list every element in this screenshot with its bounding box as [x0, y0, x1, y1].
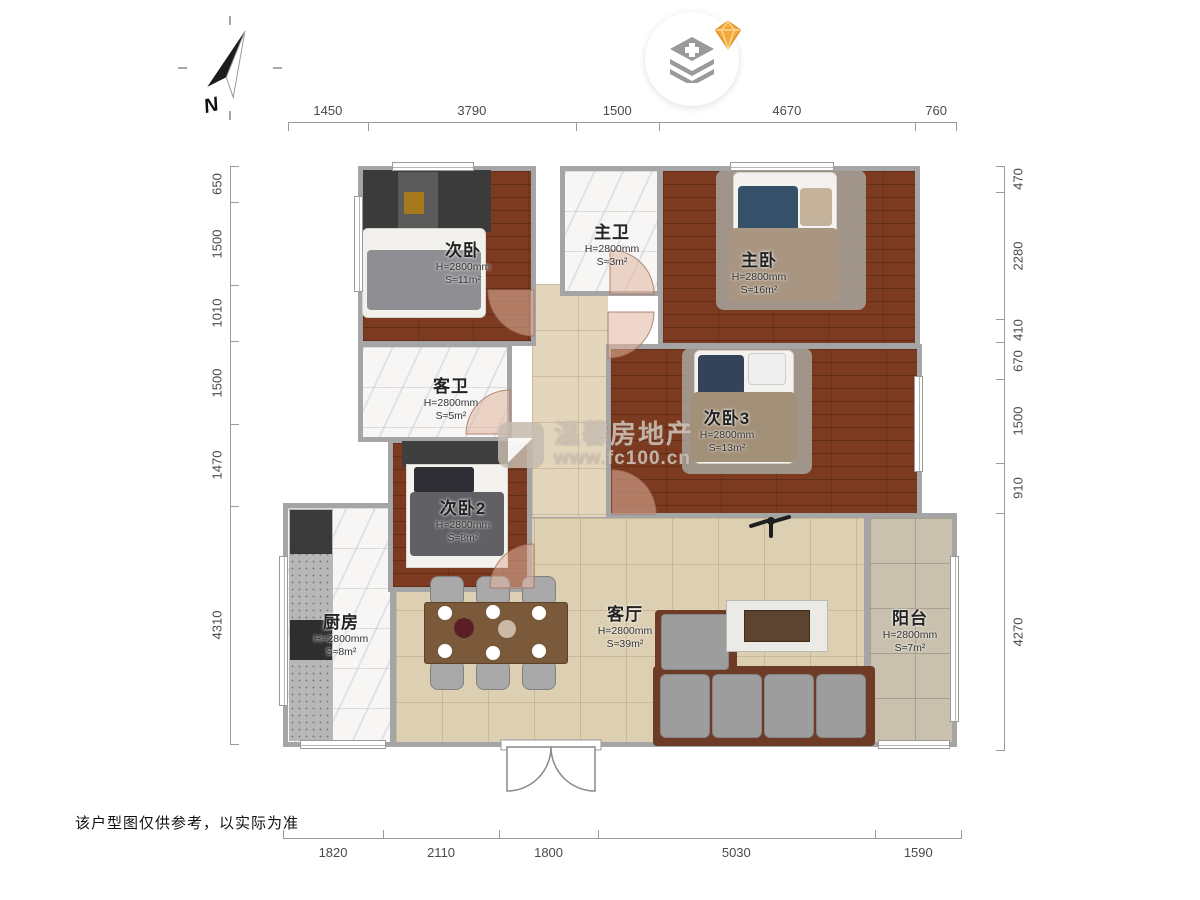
dimension-top: 1450 3790 1500 4670 760 — [288, 96, 957, 123]
bed-blanket — [738, 186, 798, 232]
room-height: H=2800mm — [398, 519, 528, 532]
label-master: 主卧 H=2800mm S≈16m² — [694, 246, 824, 297]
watermark-url: www.fc100.cn — [554, 448, 694, 470]
wardrobe-item — [404, 192, 424, 214]
watermark-logo-icon — [498, 422, 544, 468]
dim-value: 470 — [1011, 168, 1026, 190]
bed-pillow — [414, 467, 474, 493]
room-hallway — [532, 284, 608, 517]
sofa-cushion — [764, 674, 814, 738]
label-balcony: 阳台 H=2800mm S≈7m² — [845, 604, 975, 655]
dim-value: 1800 — [534, 845, 563, 860]
watermark-brand: 温馨房地产 — [554, 420, 694, 448]
diamond-icon — [713, 20, 743, 50]
bed-pillow — [748, 353, 786, 385]
dining-chair — [476, 660, 510, 690]
compass-label: N — [202, 93, 222, 118]
dim-value: 1500 — [603, 103, 632, 118]
dim-value: 1500 — [210, 368, 225, 397]
dim-value: 1820 — [319, 845, 348, 860]
dim-value: 4670 — [772, 103, 801, 118]
dim-value: 1500 — [210, 229, 225, 258]
dim-value: 1500 — [1011, 406, 1026, 435]
fruit-bowl — [454, 618, 474, 638]
room-name: 客卫 — [386, 372, 516, 397]
room-height: H=2800mm — [560, 625, 690, 638]
window — [914, 376, 923, 472]
disclaimer-text: 该户型图仅供参考，以实际为准 — [75, 812, 299, 833]
watermark: 温馨房地产 www.fc100.cn — [498, 420, 694, 470]
dim-value: 910 — [1011, 477, 1026, 499]
label-kitchen: 厨房 H=2800mm S≈8m² — [276, 608, 406, 659]
dim-value: 1590 — [904, 845, 933, 860]
bed-pillow — [800, 188, 832, 226]
room-area: S≈3m² — [547, 256, 677, 269]
room-name: 主卫 — [547, 218, 677, 243]
room-name: 次卧 — [398, 236, 528, 261]
dim-value: 5030 — [722, 845, 751, 860]
window — [354, 196, 363, 292]
room-height: H=2800mm — [386, 397, 516, 410]
dim-value: 2110 — [427, 845, 455, 860]
dim-value: 650 — [210, 173, 225, 195]
dim-value: 3790 — [457, 103, 486, 118]
bed-pillow — [698, 355, 744, 395]
label-bed1: 次卧 H=2800mm S≈11m² — [398, 236, 528, 287]
room-area: S≈11m² — [398, 274, 528, 287]
sofa-cushion — [816, 674, 866, 738]
compass-north-icon: N — [178, 16, 282, 120]
dim-value: 1450 — [313, 103, 342, 118]
entry-double-door — [501, 740, 601, 791]
kitchen-appliance — [290, 510, 332, 554]
room-area: S≈39m² — [560, 638, 690, 651]
layers-plus-icon — [668, 35, 716, 83]
dining-chair — [522, 660, 556, 690]
room-name: 次卧2 — [398, 494, 528, 519]
window — [392, 162, 474, 171]
room-name: 厨房 — [276, 608, 406, 633]
sofa-cushion — [712, 674, 762, 738]
plate — [532, 644, 546, 658]
window — [878, 740, 950, 749]
room-area: S≈8m² — [276, 646, 406, 659]
sofa-cushion — [660, 674, 710, 738]
room-area: S≈8m² — [398, 532, 528, 545]
room-height: H=2800mm — [845, 629, 975, 642]
floor-plan-page: 次卧 H=2800mm S≈11m² 主卫 H=2800mm S≈3m² 主卧 … — [0, 0, 1200, 900]
plate — [438, 606, 452, 620]
flowers — [498, 620, 516, 638]
label-living: 客厅 H=2800mm S≈39m² — [560, 600, 690, 651]
room-name: 主卧 — [694, 246, 824, 271]
dim-value: 4310 — [210, 611, 225, 640]
label-bed2: 次卧2 H=2800mm S≈8m² — [398, 494, 528, 545]
plate — [486, 605, 500, 619]
dimension-right: 470 2280 410 670 1500 910 4270 — [1004, 166, 1031, 751]
room-height: H=2800mm — [276, 633, 406, 646]
dimension-left: 650 1500 1010 1500 1470 4310 — [204, 166, 231, 745]
window — [730, 162, 834, 171]
dim-value: 2280 — [1011, 241, 1026, 270]
dim-value: 1010 — [210, 299, 225, 328]
label-bath-guest: 客卫 H=2800mm S≈5m² — [386, 372, 516, 423]
dim-value: 410 — [1011, 320, 1026, 342]
room-height: H=2800mm — [547, 243, 677, 256]
room-height: H=2800mm — [694, 271, 824, 284]
room-area: S≈7m² — [845, 642, 975, 655]
room-area: S≈5m² — [386, 410, 516, 423]
dimension-bottom: 1820 2110 1800 5030 1590 — [283, 838, 962, 865]
dim-value: 4270 — [1011, 618, 1026, 647]
room-height: H=2800mm — [398, 261, 528, 274]
label-bath-master: 主卫 H=2800mm S≈3m² — [547, 218, 677, 269]
plate — [532, 606, 546, 620]
window — [300, 740, 386, 749]
tv — [744, 610, 810, 642]
dim-value: 1470 — [210, 451, 225, 480]
ceiling-fan-icon — [748, 502, 792, 542]
dim-value: 760 — [925, 103, 947, 118]
dining-chair — [430, 660, 464, 690]
plate — [438, 644, 452, 658]
room-name: 阳台 — [845, 604, 975, 629]
room-name: 客厅 — [560, 600, 690, 625]
plate — [486, 646, 500, 660]
dim-value: 670 — [1011, 350, 1026, 372]
room-area: S≈16m² — [694, 284, 824, 297]
